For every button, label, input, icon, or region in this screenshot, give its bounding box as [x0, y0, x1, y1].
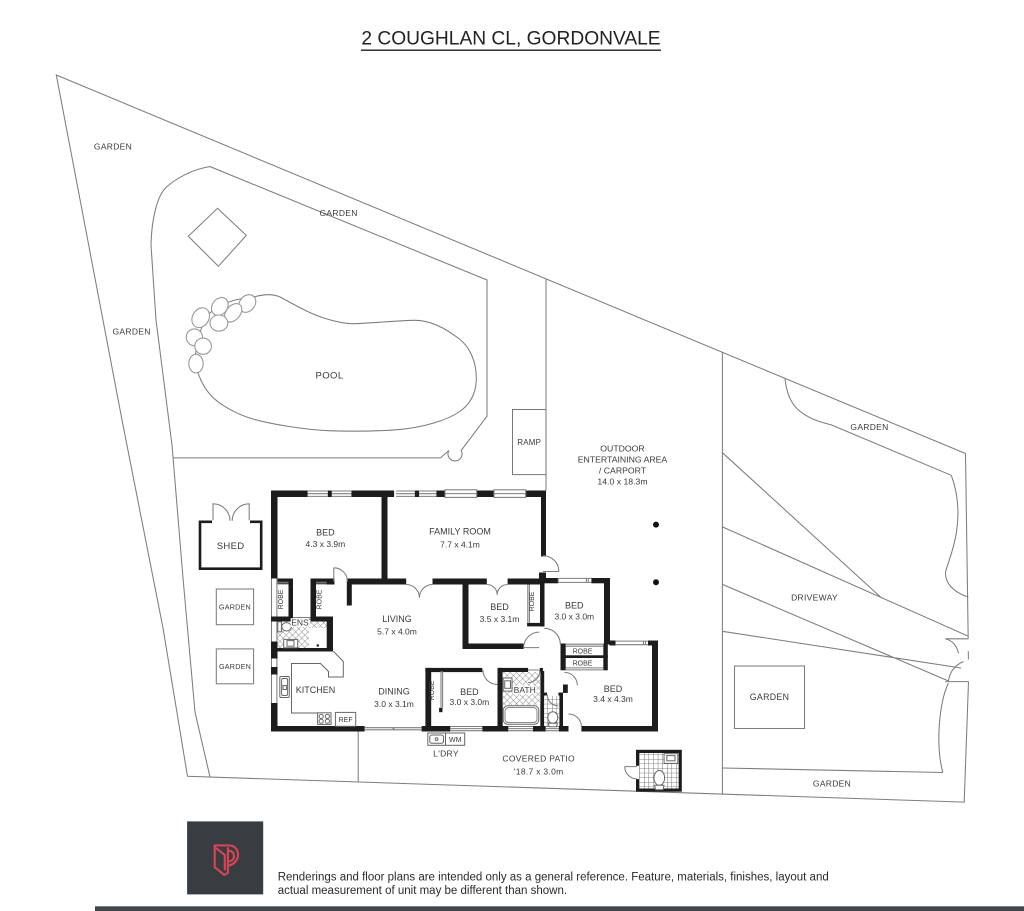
svg-text:BED: BED	[460, 687, 479, 697]
svg-text:ROBE: ROBE	[573, 661, 593, 668]
svg-text:OUTDOOR: OUTDOOR	[600, 444, 644, 454]
svg-text:BED: BED	[565, 601, 584, 611]
svg-text:4.3 x 3.9m: 4.3 x 3.9m	[306, 539, 346, 549]
svg-text:RAMP: RAMP	[517, 438, 541, 447]
svg-text:GARDEN: GARDEN	[813, 779, 851, 789]
svg-text:BED: BED	[490, 602, 509, 612]
svg-text:GARDEN: GARDEN	[850, 422, 888, 432]
svg-text:LIVING: LIVING	[382, 614, 412, 624]
svg-text:GARDEN: GARDEN	[219, 662, 251, 671]
svg-text:14.0 x 18.3m: 14.0 x 18.3m	[597, 477, 647, 487]
svg-text:SHED: SHED	[217, 541, 245, 552]
svg-text:ROBE: ROBE	[317, 589, 324, 609]
svg-text:ROBE: ROBE	[529, 591, 536, 611]
svg-text:GARDEN: GARDEN	[94, 142, 132, 152]
svg-text:Renderings and floor plans are: Renderings and floor plans are intended …	[278, 872, 829, 884]
svg-text:DRIVEWAY: DRIVEWAY	[791, 592, 838, 602]
svg-text:ROBE: ROBE	[429, 680, 436, 700]
svg-text:ROBE: ROBE	[573, 649, 593, 656]
svg-text:ENTERTAINING AREA: ENTERTAINING AREA	[578, 455, 668, 465]
svg-text:COVERED PATIO: COVERED PATIO	[502, 754, 575, 764]
svg-text:7.7 x 4.1m: 7.7 x 4.1m	[440, 540, 480, 550]
svg-text:5.7 x 4.0m: 5.7 x 4.0m	[377, 627, 417, 637]
svg-text:BED: BED	[604, 684, 623, 694]
svg-text:'18.7 x 3.0m: '18.7 x 3.0m	[514, 767, 564, 777]
svg-text:KITCHEN: KITCHEN	[296, 685, 336, 695]
svg-text:3.0 x 3.0m: 3.0 x 3.0m	[450, 697, 490, 707]
svg-text:POOL: POOL	[316, 370, 344, 381]
svg-text:DINING: DINING	[378, 687, 410, 697]
svg-text:REF: REF	[339, 717, 353, 724]
svg-text:ENS: ENS	[291, 618, 309, 628]
svg-text:GARDEN: GARDEN	[750, 692, 789, 702]
svg-text:/ CARPORT: / CARPORT	[599, 466, 647, 476]
svg-text:3.0 x 3.1m: 3.0 x 3.1m	[374, 699, 414, 709]
svg-text:2 COUGHLAN CL, GORDONVALE: 2 COUGHLAN CL, GORDONVALE	[361, 29, 660, 50]
svg-text:3.4 x 4.3m: 3.4 x 4.3m	[593, 694, 633, 704]
svg-text:BATH: BATH	[514, 685, 536, 695]
svg-text:GARDEN: GARDEN	[219, 603, 251, 612]
svg-text:GARDEN: GARDEN	[320, 208, 358, 218]
svg-text:3.5 x 3.1m: 3.5 x 3.1m	[480, 614, 520, 624]
svg-text:WM: WM	[449, 737, 462, 744]
svg-text:ROBE: ROBE	[278, 589, 285, 609]
svg-text:BED: BED	[316, 528, 335, 538]
svg-text:actual measurement of unit may: actual measurement of unit may be differ…	[278, 885, 567, 897]
svg-text:GARDEN: GARDEN	[113, 326, 151, 336]
svg-text:L'DRY: L'DRY	[433, 748, 459, 758]
svg-text:3.0 x 3.0m: 3.0 x 3.0m	[554, 612, 594, 622]
svg-text:FAMILY ROOM: FAMILY ROOM	[429, 527, 491, 537]
